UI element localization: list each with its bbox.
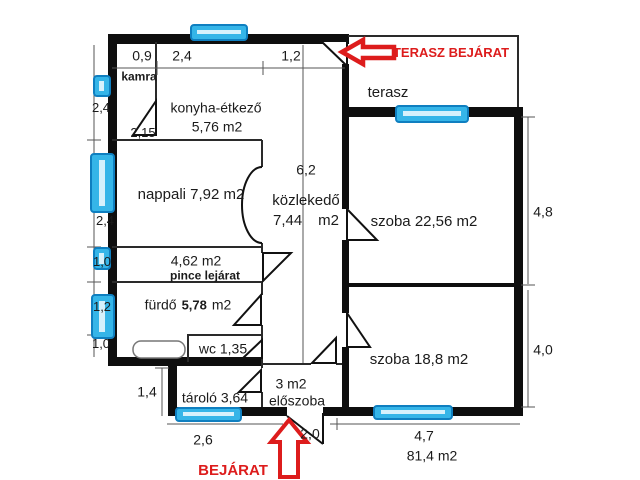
bathtub-icon	[133, 341, 185, 358]
room-label-eloszoba: előszoba	[269, 394, 325, 409]
window-icon-szoba-kis	[374, 406, 452, 419]
terasz-entrance-label: TERASZ BEJÁRAT	[393, 46, 509, 60]
dim-left-3: 1,0	[93, 255, 111, 269]
dim-inner-14: 1,4	[137, 385, 156, 400]
wall-room-divider	[349, 283, 514, 287]
window-icon-terasz	[396, 106, 468, 122]
room-area-pince: 4,62 m2	[171, 254, 222, 269]
szoba-kis-door-swing-icon	[347, 313, 370, 347]
room-label-terasz: terasz	[368, 85, 409, 101]
room-label-furdo: fürdő 5,78 m2	[145, 298, 232, 313]
room-area-kozlekedo-unit: m2	[318, 213, 339, 229]
room-label-konyha: konyha-étkező	[170, 101, 261, 116]
pince-door-swing-icon	[263, 253, 291, 281]
window-icon-nappali	[91, 154, 114, 212]
dim-top-2: 2,4	[172, 49, 191, 64]
wall-mid-b	[342, 64, 349, 209]
dim-right-2: 4,0	[533, 343, 552, 358]
dim-line-inset	[155, 368, 169, 416]
wall-mid-d	[342, 347, 349, 415]
dim-inner-62: 6,2	[296, 163, 315, 178]
furdo-door-swing-icon	[234, 295, 261, 325]
room-label-tarolo: tároló 3,64	[182, 391, 248, 406]
dim-left-5: 1,0	[92, 337, 110, 351]
room-label-szoba-nagy: szoba 22,56 m2	[371, 214, 478, 230]
room-area-kozlekedo: 7,44 m2	[273, 213, 339, 229]
dim-bottom-1: 2,6	[193, 433, 212, 448]
dim-top-1: 0,9	[132, 49, 151, 64]
room-area-kozlekedo-value: 7,44	[273, 213, 302, 229]
room-area-konyha: 5,76 m2	[192, 120, 243, 135]
dim-inner-215: 2,15	[130, 126, 155, 140]
total-area-label: 81,4 m2	[407, 449, 458, 464]
room-label-szoba-kis: szoba 18,8 m2	[370, 352, 468, 368]
dim-right-1: 4,8	[533, 205, 552, 220]
wall-mid-c	[342, 240, 349, 313]
window-icon-kitchen	[191, 25, 247, 40]
nappali-door-arc-icon	[242, 167, 262, 243]
room-label-pince: pince lejárat	[170, 270, 240, 283]
dim-line-right	[521, 117, 535, 407]
wall-bath-bottom	[108, 357, 263, 366]
room-label-wc: wc 1,35	[199, 342, 247, 357]
room-area-furdo-unit: m2	[212, 298, 231, 313]
room-area-furdo-value: 5,78	[182, 299, 207, 313]
room-label-kamra: kamra	[121, 71, 156, 84]
room-label-furdo-name: fürdő	[145, 298, 177, 313]
dim-left-1: 2,4	[92, 101, 110, 115]
floor-plan: 0,9 2,4 1,2 2,4 2,4 1,0 1,2 1,0 2,15 6,2…	[0, 0, 640, 480]
eloszoba-door-swing-icon	[312, 338, 336, 363]
room-area-eloszoba: 3 m2	[275, 377, 306, 392]
dim-left-4: 1,2	[93, 300, 111, 314]
room-label-nappali: nappali 7,92 m2	[138, 187, 245, 203]
dim-bottom-2: 2,0	[300, 427, 319, 442]
terasz-entrance-arrow-icon	[342, 40, 394, 64]
entrance-label: BEJÁRAT	[198, 463, 268, 479]
wall-right	[514, 107, 523, 416]
dim-top-3: 1,2	[281, 49, 300, 64]
window-icon-kamra	[94, 76, 110, 96]
room-label-kozlekedo: közlekedő	[272, 193, 340, 209]
dim-left-2: 2,4	[96, 214, 114, 228]
dim-bottom-3: 4,7	[414, 429, 433, 444]
window-icon-tarolo	[176, 408, 241, 421]
